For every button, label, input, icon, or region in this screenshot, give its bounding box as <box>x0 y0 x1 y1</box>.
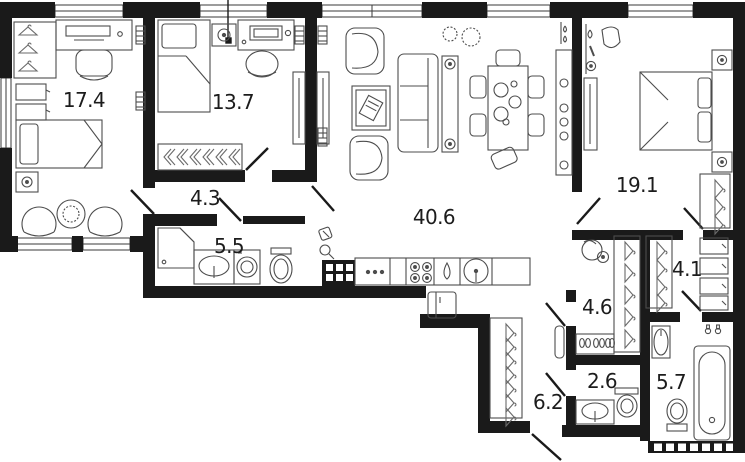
room-area-label-entry-hall: 6.2 <box>533 390 563 414</box>
room-area-label-living-kitchen: 40.6 <box>413 205 455 229</box>
room-area-label-bedroom-left: 17.4 <box>63 88 105 112</box>
room-area-label-storage-closet: 4.6 <box>582 295 612 319</box>
floor-plan: 17.4 13.7 4.3 5.5 40.6 19.1 4.1 4.6 2.6 … <box>0 0 745 462</box>
room-labels: 17.4 13.7 4.3 5.5 40.6 19.1 4.1 4.6 2.6 … <box>0 0 745 462</box>
room-area-label-bedroom-master: 19.1 <box>616 173 658 197</box>
room-area-label-bathroom-family: 5.5 <box>214 234 244 258</box>
room-area-label-wardrobe-master: 4.1 <box>672 257 702 281</box>
room-area-label-wc-guest: 2.6 <box>587 369 617 393</box>
room-area-label-bedroom-middle: 13.7 <box>212 90 254 114</box>
room-area-label-bathroom-master: 5.7 <box>656 370 686 394</box>
room-area-label-corridor: 4.3 <box>190 186 220 210</box>
